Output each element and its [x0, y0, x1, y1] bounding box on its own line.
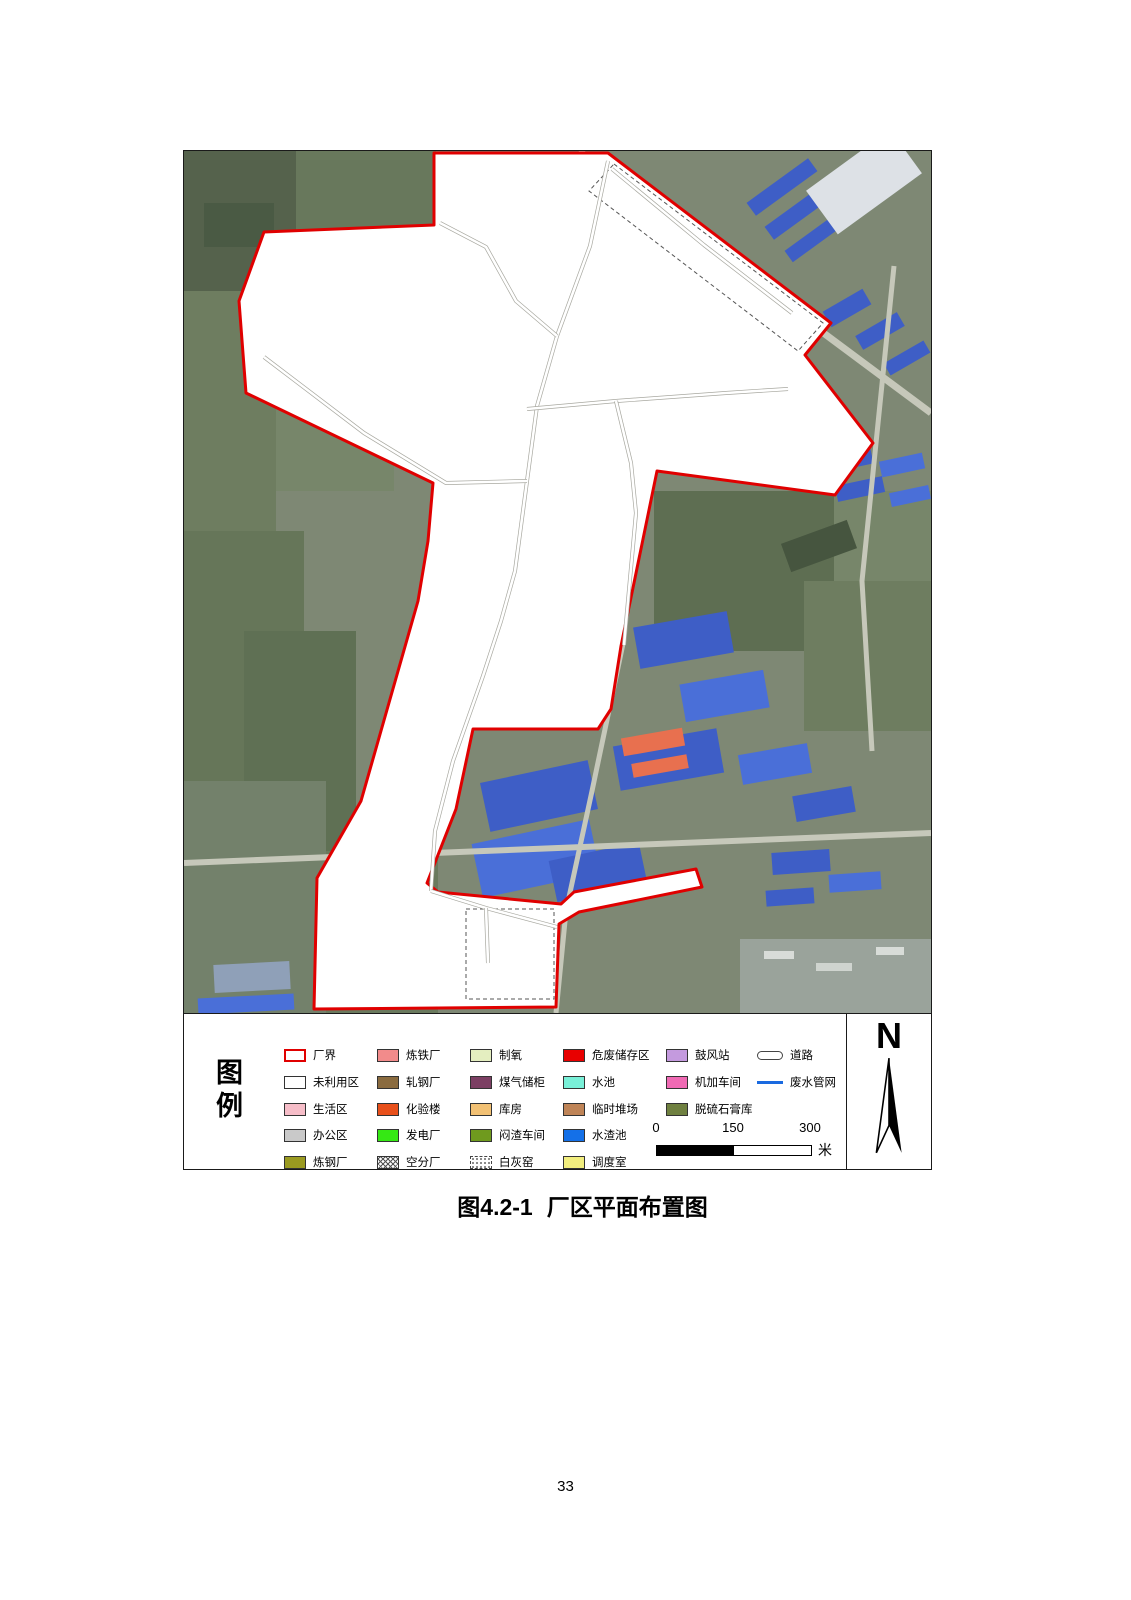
legend-item-liangangchang: 炼钢厂 — [284, 1154, 348, 1170]
scale-tick-150: 150 — [722, 1120, 744, 1135]
diaodushi-label: 调度室 — [592, 1154, 627, 1170]
shuichi-swatch — [563, 1076, 585, 1089]
weifeichucunqu-swatch — [563, 1049, 585, 1062]
legend-item-baihuiyao: 白灰窑 — [470, 1154, 534, 1170]
lietiechang-label: 炼铁厂 — [406, 1047, 441, 1063]
bangongqu-label: 办公区 — [313, 1127, 348, 1143]
legend-title: 图例 — [208, 1058, 247, 1124]
tuoliushigaoku-label: 脱硫石膏库 — [695, 1101, 753, 1117]
sat-patch — [884, 340, 931, 375]
lietiechang-swatch — [377, 1049, 399, 1062]
fadianchang-label: 发电厂 — [406, 1127, 441, 1143]
zhagangchang-swatch — [377, 1076, 399, 1089]
gufengzhan-label: 鼓风站 — [695, 1047, 730, 1063]
meiqichugui-swatch — [470, 1076, 492, 1089]
sat-patch — [879, 453, 925, 478]
legend-item-tuoliushigaoku: 脱硫石膏库 — [666, 1101, 753, 1117]
linshiduichang-label: 临时堆场 — [592, 1101, 638, 1117]
huayanlou-swatch — [377, 1103, 399, 1116]
page-number: 33 — [0, 1478, 1131, 1495]
caption-number: 图4.2-1 — [457, 1194, 532, 1220]
scale-unit: 米 — [818, 1140, 832, 1160]
sat-patch — [633, 611, 734, 669]
kufang-label: 库房 — [499, 1101, 522, 1117]
liangangchang-label: 炼钢厂 — [313, 1154, 348, 1170]
changjie-swatch — [284, 1049, 306, 1062]
legend-item-kufang: 库房 — [470, 1101, 522, 1117]
tuoliushigaoku-swatch — [666, 1103, 688, 1116]
weifeichucunqu-label: 危废储存区 — [592, 1047, 650, 1063]
scale-ticks: 0 150 300 — [656, 1120, 836, 1136]
diaodushi-swatch — [563, 1156, 585, 1169]
legend-item-linshiduichang: 临时堆场 — [563, 1101, 638, 1117]
sat-patch — [738, 743, 812, 785]
kongfenchang-swatch — [377, 1156, 399, 1169]
legend-item-shenghuoqu: 生活区 — [284, 1101, 348, 1117]
scale-tick-300: 300 — [799, 1120, 821, 1135]
weiliyongqu-label: 未利用区 — [313, 1074, 359, 1090]
sat-patch — [855, 312, 905, 350]
legend-item-kongfenchang: 空分厂 — [377, 1154, 441, 1170]
daolu-label: 道路 — [790, 1047, 813, 1063]
legend-item-jijiachejian: 机加车间 — [666, 1074, 741, 1090]
legend-item-feishuiguanwang: 废水管网 — [757, 1074, 836, 1090]
legend-item-weifeichucunqu: 危废储存区 — [563, 1047, 650, 1063]
north-indicator: N — [846, 1014, 931, 1169]
gufengzhan-swatch — [666, 1049, 688, 1062]
shuichi-label: 水池 — [592, 1074, 615, 1090]
menzhachejian-label: 闷渣车间 — [499, 1127, 545, 1143]
liangangchang-swatch — [284, 1156, 306, 1169]
kufang-swatch — [470, 1103, 492, 1116]
jijiachejian-swatch — [666, 1076, 688, 1089]
legend-item-shuizhachi: 水渣池 — [563, 1127, 627, 1143]
shuizhachi-label: 水渣池 — [592, 1127, 627, 1143]
feishuiguanwang-label: 废水管网 — [790, 1074, 836, 1090]
legend-item-lietiechang: 炼铁厂 — [377, 1047, 441, 1063]
zhagangchang-label: 轧钢厂 — [406, 1074, 441, 1090]
scale-bar-graphic: 米 — [656, 1140, 836, 1160]
scale-bar-segments — [656, 1145, 812, 1156]
sat-patch — [213, 961, 290, 993]
menzhachejian-swatch — [470, 1129, 492, 1142]
baihuiyao-label: 白灰窑 — [499, 1154, 534, 1170]
changjie-label: 厂界 — [313, 1047, 336, 1063]
baihuiyao-swatch — [470, 1156, 492, 1169]
daolu-swatch — [757, 1051, 783, 1060]
sat-patch — [876, 947, 904, 955]
meiqichugui-label: 煤气储柜 — [499, 1074, 545, 1090]
figure-caption: 图4.2-1厂区平面布置图 — [0, 1188, 1131, 1222]
legend-item-huayanlou: 化验楼 — [377, 1101, 441, 1117]
sat-patch — [771, 849, 830, 875]
sat-patch — [806, 151, 922, 234]
legend: 图例 厂界未利用区生活区办公区炼钢厂炼铁厂轧钢厂化验楼发电厂空分厂制氧煤气储柜库… — [184, 1013, 931, 1169]
map-svg — [184, 151, 931, 1013]
legend-item-bangongqu: 办公区 — [284, 1127, 348, 1143]
sat-patch — [679, 670, 769, 722]
huayanlou-label: 化验楼 — [406, 1101, 441, 1117]
legend-item-meiqichugui: 煤气储柜 — [470, 1074, 545, 1090]
sat-patch — [816, 963, 852, 971]
legend-item-menzhachejian: 闷渣车间 — [470, 1127, 545, 1143]
scale-bar: 0 150 300 米 — [656, 1120, 836, 1160]
legend-item-zhagangchang: 轧钢厂 — [377, 1074, 441, 1090]
legend-item-daolu: 道路 — [757, 1047, 813, 1063]
legend-item-changjie: 厂界 — [284, 1047, 336, 1063]
legend-item-diaodushi: 调度室 — [563, 1154, 627, 1170]
shenghuoqu-label: 生活区 — [313, 1101, 348, 1117]
legend-item-zhiyang: 制氧 — [470, 1047, 522, 1063]
legend-item-gufengzhan: 鼓风站 — [666, 1047, 730, 1063]
kongfenchang-label: 空分厂 — [406, 1154, 441, 1170]
sat-patch — [792, 786, 856, 822]
north-label: N — [847, 1016, 931, 1056]
zhiyang-swatch — [470, 1049, 492, 1062]
sat-patch — [766, 887, 815, 906]
scale-tick-0: 0 — [652, 1120, 659, 1135]
weiliyongqu-swatch — [284, 1076, 306, 1089]
sat-patch — [828, 871, 881, 893]
figure-frame: 图例 厂界未利用区生活区办公区炼钢厂炼铁厂轧钢厂化验楼发电厂空分厂制氧煤气储柜库… — [183, 150, 932, 1170]
caption-title: 厂区平面布置图 — [547, 1194, 708, 1220]
fadianchang-swatch — [377, 1129, 399, 1142]
linshiduichang-swatch — [563, 1103, 585, 1116]
north-arrow-icon — [874, 1056, 904, 1156]
jijiachejian-label: 机加车间 — [695, 1074, 741, 1090]
sat-patch — [296, 151, 436, 231]
legend-item-fadianchang: 发电厂 — [377, 1127, 441, 1143]
shuizhachi-swatch — [563, 1129, 585, 1142]
shenghuoqu-swatch — [284, 1103, 306, 1116]
legend-item-weiliyongqu: 未利用区 — [284, 1074, 359, 1090]
plant-layout-map — [184, 151, 931, 1013]
feishuiguanwang-swatch — [757, 1081, 783, 1084]
sat-patch — [764, 951, 794, 959]
bangongqu-swatch — [284, 1129, 306, 1142]
legend-item-shuichi: 水池 — [563, 1074, 615, 1090]
zhiyang-label: 制氧 — [499, 1047, 522, 1063]
